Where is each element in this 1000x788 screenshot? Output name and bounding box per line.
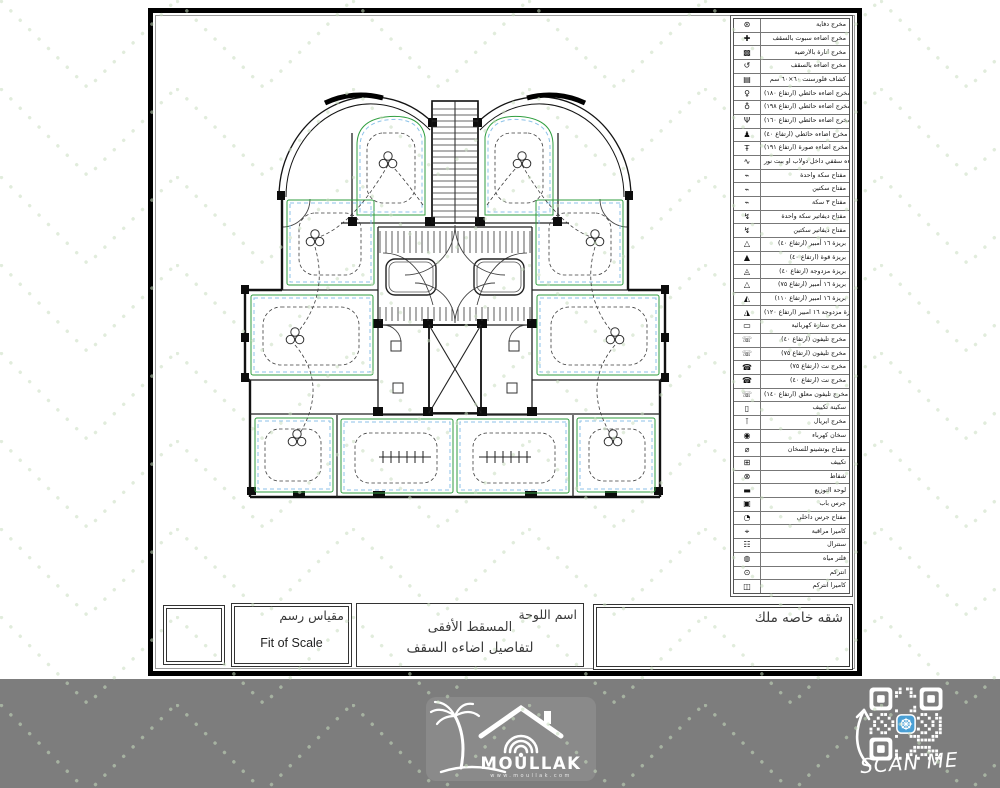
legend-row-ceiling-spot-outlet: ✚مخرج اضاءه سبوت بالسقف bbox=[734, 33, 849, 47]
legend-row-double-socket-40: ◬بريزة مزدوجة (ارتفاع ٤٠) bbox=[734, 265, 849, 279]
legend-label: مفتاح ديفاتير سكة واحدة bbox=[761, 214, 849, 220]
legend-row-power-socket-40: ▲بريزة قوة (ارتفاع ٤٠) bbox=[734, 252, 849, 266]
wall-phone-outlet-140-icon: ☏ bbox=[734, 389, 761, 402]
page: ⊛مخرج دفاية✚مخرج اضاءه سبوت بالسقف▩مخرج … bbox=[0, 0, 1000, 788]
legend-label: كاميرا مراقبة bbox=[761, 529, 849, 535]
legend-row-phone-outlet-75: ☏مخرج تليفون (ارتفاع ٧٥) bbox=[734, 348, 849, 362]
legend-row-closet-light-outlet: ∿مخرج اضاءه سقفي داخل دولاب او بيت نور bbox=[734, 156, 849, 170]
legend-label: بريزة قوة (ارتفاع ٤٠) bbox=[761, 255, 849, 261]
legend-label: مخرج اضاءه حائطي (ارتفاع ٤٠) bbox=[761, 132, 849, 138]
logo-url: www.moullak.com bbox=[490, 773, 572, 779]
legend-table: ⊛مخرج دفاية✚مخرج اضاءه سبوت بالسقف▩مخرج … bbox=[733, 18, 850, 594]
floor-plan bbox=[233, 85, 677, 512]
legend-row-wall-light-160: Ψمخرج اضاءه حائطي (ارتفاع ١٦٠) bbox=[734, 115, 849, 129]
double-socket-40-icon: ◬ bbox=[734, 265, 761, 278]
legend-label: مفتاح سكتين bbox=[761, 186, 849, 192]
legend-label: جرس باب bbox=[761, 501, 849, 507]
air-conditioner-icon: ⊞ bbox=[734, 457, 761, 470]
legend-label: مخرج نت (ارتفاع ٤٠) bbox=[761, 378, 849, 384]
legend-row-exhaust-fan: ⊗شفاط bbox=[734, 471, 849, 485]
legend-label: كشاف فلورسنت ٦٠×٦٠ سم bbox=[761, 77, 849, 83]
central-unit-icon: ☷ bbox=[734, 539, 761, 552]
legend-row-double-socket-16a-120: ◮بريزة مزدوجة ١٦ امبير (ارتفاع ١٢٠) bbox=[734, 306, 849, 320]
legend-row-door-bell: ▣جرس باب bbox=[734, 498, 849, 512]
legend-label: مخرج تليفون (ارتفاع ٤٠) bbox=[761, 337, 849, 343]
legend-row-socket-16a-40: △بريزة ١٦ أمبير (ارتفاع ٤٠) bbox=[734, 238, 849, 252]
legend-label: سنترال bbox=[761, 542, 849, 548]
net-outlet-75-icon: ☎ bbox=[734, 361, 761, 374]
legend-row-socket-16a-110: ◭بريزة ١٦ امبير (ارتفاع ١١٠) bbox=[734, 293, 849, 307]
legend-label: مخرج اضاءه سقفي داخل دولاب او بيت نور bbox=[761, 159, 849, 165]
legend-label: مخرج تليفون (ارتفاع ٧٥) bbox=[761, 351, 849, 357]
legend-row-diverter-switch-two: ↯مفتاح ديفاتير سكتين bbox=[734, 224, 849, 238]
legend-label: كاميرا انتركم bbox=[761, 583, 849, 589]
power-socket-40-icon: ▲ bbox=[734, 252, 761, 265]
water-filter-icon: ◍ bbox=[734, 553, 761, 566]
scale-value: Fit of Scale bbox=[232, 636, 351, 650]
legend-label: بريزة مزدوجة (ارتفاع ٤٠) bbox=[761, 269, 849, 275]
sheet-description: لتفاصيل اضاءه السقف bbox=[357, 640, 583, 656]
legend-row-distribution-board: ▬لوحة التوزيع bbox=[734, 484, 849, 498]
legend-label: مخرج اضاءه صورة (ارتفاع ١٩١) bbox=[761, 145, 849, 151]
legend-row-socket-16a-75: △بريزة ١٦ أمبير (ارتفاع ٧٥) bbox=[734, 279, 849, 293]
one-gang-switch-icon: ⌁ bbox=[734, 170, 761, 183]
fluorescent-60x60-icon: ▤ bbox=[734, 74, 761, 87]
heater-switch-icon: ⌀ bbox=[734, 443, 761, 456]
legend-row-three-gang-switch: ⌁مفتاح ٣ سكة bbox=[734, 197, 849, 211]
legend-row-net-outlet-40: ☎مخرج نت (ارتفاع ٤٠) bbox=[734, 375, 849, 389]
legend-label: مخرج انارة بالارضية bbox=[761, 50, 849, 56]
legend-row-ceiling-light-outlet: ↺مخرج اضاءه بالسقف bbox=[734, 60, 849, 74]
legend-row-electric-curtain-outlet: ▭مخرج ستارة كهربائية bbox=[734, 320, 849, 334]
legend-label: بريزة مزدوجة ١٦ امبير (ارتفاع ١٢٠) bbox=[761, 310, 849, 316]
two-gang-switch-icon: ⌁ bbox=[734, 183, 761, 196]
legend-row-diverter-switch-one: ↯مفتاح ديفاتير سكة واحدة bbox=[734, 211, 849, 225]
legend-label: مخرج دفاية bbox=[761, 22, 849, 28]
phone-outlet-75-icon: ☏ bbox=[734, 348, 761, 361]
wall-light-40-icon: ♟ bbox=[734, 129, 761, 142]
legend-row-water-filter: ◍فلتر مياه bbox=[734, 553, 849, 567]
titleblock-scale-box: مقياس رسم Fit of Scale bbox=[231, 603, 352, 667]
legend-row-wall-light-198: ♁مخرج اضاءه حائطي (ارتفاع ١٩٨) bbox=[734, 101, 849, 115]
legend-row-air-conditioner: ⊞تكييف bbox=[734, 457, 849, 471]
wall-light-198-icon: ♁ bbox=[734, 101, 761, 114]
legend-label: مفتاح ٣ سكة bbox=[761, 200, 849, 206]
socket-16a-75-icon: △ bbox=[734, 279, 761, 292]
legend-label: شفاط bbox=[761, 474, 849, 480]
legend-label: لوحة التوزيع bbox=[761, 488, 849, 494]
legend-label: مخرج ستارة كهربائية bbox=[761, 323, 849, 329]
ceiling-spot-outlet-icon: ✚ bbox=[734, 33, 761, 46]
intercom-icon: ⊙ bbox=[734, 567, 761, 580]
titleblock-owner-box: شقه خاصه ملك bbox=[593, 604, 853, 670]
legend-label: مخرج اضاءه حائطي (ارتفاع ١٦٠) bbox=[761, 118, 849, 124]
legend-label: مخرج اضاءه بالسقف bbox=[761, 63, 849, 69]
double-socket-16a-120-icon: ◮ bbox=[734, 306, 761, 319]
legend-row-fluorescent-60x60: ▤كشاف فلورسنت ٦٠×٦٠ سم bbox=[734, 74, 849, 88]
legend-row-intercom-camera: ◫كاميرا انتركم bbox=[734, 580, 849, 593]
qr-center-icon bbox=[897, 715, 915, 733]
legend-row-phone-outlet-40: ☏مخرج تليفون (ارتفاع ٤٠) bbox=[734, 334, 849, 348]
picture-light-191-icon: Ŧ bbox=[734, 142, 761, 155]
legend-row-heater-switch: ⌀مفتاح بوتشينو للسخان bbox=[734, 443, 849, 457]
wall-light-160-icon: Ψ bbox=[734, 115, 761, 128]
legend-row-two-gang-switch: ⌁مفتاح سكتين bbox=[734, 183, 849, 197]
legend-row-cctv-camera: ⌖كاميرا مراقبة bbox=[734, 525, 849, 539]
closet-light-outlet-icon: ∿ bbox=[734, 156, 761, 169]
legend-label: مفتاح سكة واحدة bbox=[761, 173, 849, 179]
legend-row-heater-outlet: ⊛مخرج دفاية bbox=[734, 19, 849, 33]
diverter-switch-two-icon: ↯ bbox=[734, 224, 761, 237]
legend-label: تكييف bbox=[761, 460, 849, 466]
sheet-name: المسقط الأفقى bbox=[357, 620, 583, 635]
aerial-outlet-icon: ⊺ bbox=[734, 416, 761, 429]
legend-label: مخرج اضاءه حائطي (ارتفاع ١٩٨) bbox=[761, 104, 849, 110]
legend-row-intercom: ⊙انتركم bbox=[734, 567, 849, 581]
wall-light-180-icon: ♀ bbox=[734, 87, 761, 100]
legend-row-wall-light-40: ♟مخرج اضاءه حائطي (ارتفاع ٤٠) bbox=[734, 129, 849, 143]
legend-label: مفتاح بوتشينو للسخان bbox=[761, 447, 849, 453]
titleblock-sheet-name-box: اسم اللوحة المسقط الأفقى لتفاصيل اضاءه ا… bbox=[356, 603, 584, 667]
legend-label: بريزة ١٦ امبير (ارتفاع ١١٠) bbox=[761, 296, 849, 302]
legend-row-one-gang-switch: ⌁مفتاح سكة واحدة bbox=[734, 170, 849, 184]
titleblock-empty-box bbox=[163, 605, 225, 665]
legend: ⊛مخرج دفاية✚مخرج اضاءه سبوت بالسقف▩مخرج … bbox=[730, 15, 853, 597]
distribution-board-icon: ▬ bbox=[734, 484, 761, 497]
three-gang-switch-icon: ⌁ bbox=[734, 197, 761, 210]
legend-label: فلتر مياه bbox=[761, 556, 849, 562]
legend-row-picture-light-191: Ŧمخرج اضاءه صورة (ارتفاع ١٩١) bbox=[734, 142, 849, 156]
legend-label: مخرج نت (ارتفاع ٧٥) bbox=[761, 364, 849, 370]
legend-label: سكينة تكييف bbox=[761, 405, 849, 411]
ac-isolator-icon: ▯ bbox=[734, 402, 761, 415]
legend-row-wall-phone-outlet-140: ☏مخرج تليفون معلق (ارتفاع ١٤٠) bbox=[734, 389, 849, 403]
intercom-camera-icon: ◫ bbox=[734, 580, 761, 593]
legend-label: سخان كهرباء bbox=[761, 433, 849, 439]
legend-label: مفتاح جرس داخلي bbox=[761, 515, 849, 521]
legend-label: مفتاح ديفاتير سكتين bbox=[761, 228, 849, 234]
legend-label: انتركم bbox=[761, 570, 849, 576]
diverter-switch-one-icon: ↯ bbox=[734, 211, 761, 224]
door-bell-icon: ▣ bbox=[734, 498, 761, 511]
exhaust-fan-icon: ⊗ bbox=[734, 471, 761, 484]
socket-16a-40-icon: △ bbox=[734, 238, 761, 251]
legend-label: بريزة ١٦ أمبير (ارتفاع ٤٠) bbox=[761, 241, 849, 247]
socket-16a-110-icon: ◭ bbox=[734, 293, 761, 306]
indoor-bell-switch-icon: ◔ bbox=[734, 512, 761, 525]
legend-label: مخرج اضاءه سبوت بالسقف bbox=[761, 36, 849, 42]
elevator-shaft bbox=[429, 325, 481, 413]
owner-name: شقه خاصه ملك bbox=[755, 610, 843, 626]
legend-label: مخرج تليفون معلق (ارتفاع ١٤٠) bbox=[761, 392, 849, 398]
moullak-logo: MOULLAK www.moullak.com bbox=[425, 696, 597, 782]
heater-outlet-icon: ⊛ bbox=[734, 19, 761, 32]
legend-row-floor-light-outlet: ▩مخرج انارة بالارضية bbox=[734, 46, 849, 60]
electric-heater-icon: ◉ bbox=[734, 430, 761, 443]
scale-label-ar: مقياس رسم bbox=[279, 608, 344, 623]
logo-wordmark: MOULLAK bbox=[481, 754, 582, 773]
floor-light-outlet-icon: ▩ bbox=[734, 46, 761, 59]
legend-row-aerial-outlet: ⊺مخرج ايريال bbox=[734, 416, 849, 430]
cctv-camera-icon: ⌖ bbox=[734, 525, 761, 538]
electric-curtain-outlet-icon: ▭ bbox=[734, 320, 761, 333]
net-outlet-40-icon: ☎ bbox=[734, 375, 761, 388]
legend-label: بريزة ١٦ أمبير (ارتفاع ٧٥) bbox=[761, 282, 849, 288]
legend-row-indoor-bell-switch: ◔مفتاح جرس داخلي bbox=[734, 512, 849, 526]
phone-outlet-40-icon: ☏ bbox=[734, 334, 761, 347]
legend-row-wall-light-180: ♀مخرج اضاءه حائطي (ارتفاع ١٨٠) bbox=[734, 87, 849, 101]
legend-row-net-outlet-75: ☎مخرج نت (ارتفاع ٧٥) bbox=[734, 361, 849, 375]
legend-label: مخرج ايريال bbox=[761, 419, 849, 425]
legend-label: مخرج اضاءه حائطي (ارتفاع ١٨٠) bbox=[761, 91, 849, 97]
legend-row-ac-isolator: ▯سكينة تكييف bbox=[734, 402, 849, 416]
legend-row-central-unit: ☷سنترال bbox=[734, 539, 849, 553]
legend-row-electric-heater: ◉سخان كهرباء bbox=[734, 430, 849, 444]
ceiling-light-outlet-icon: ↺ bbox=[734, 60, 761, 73]
